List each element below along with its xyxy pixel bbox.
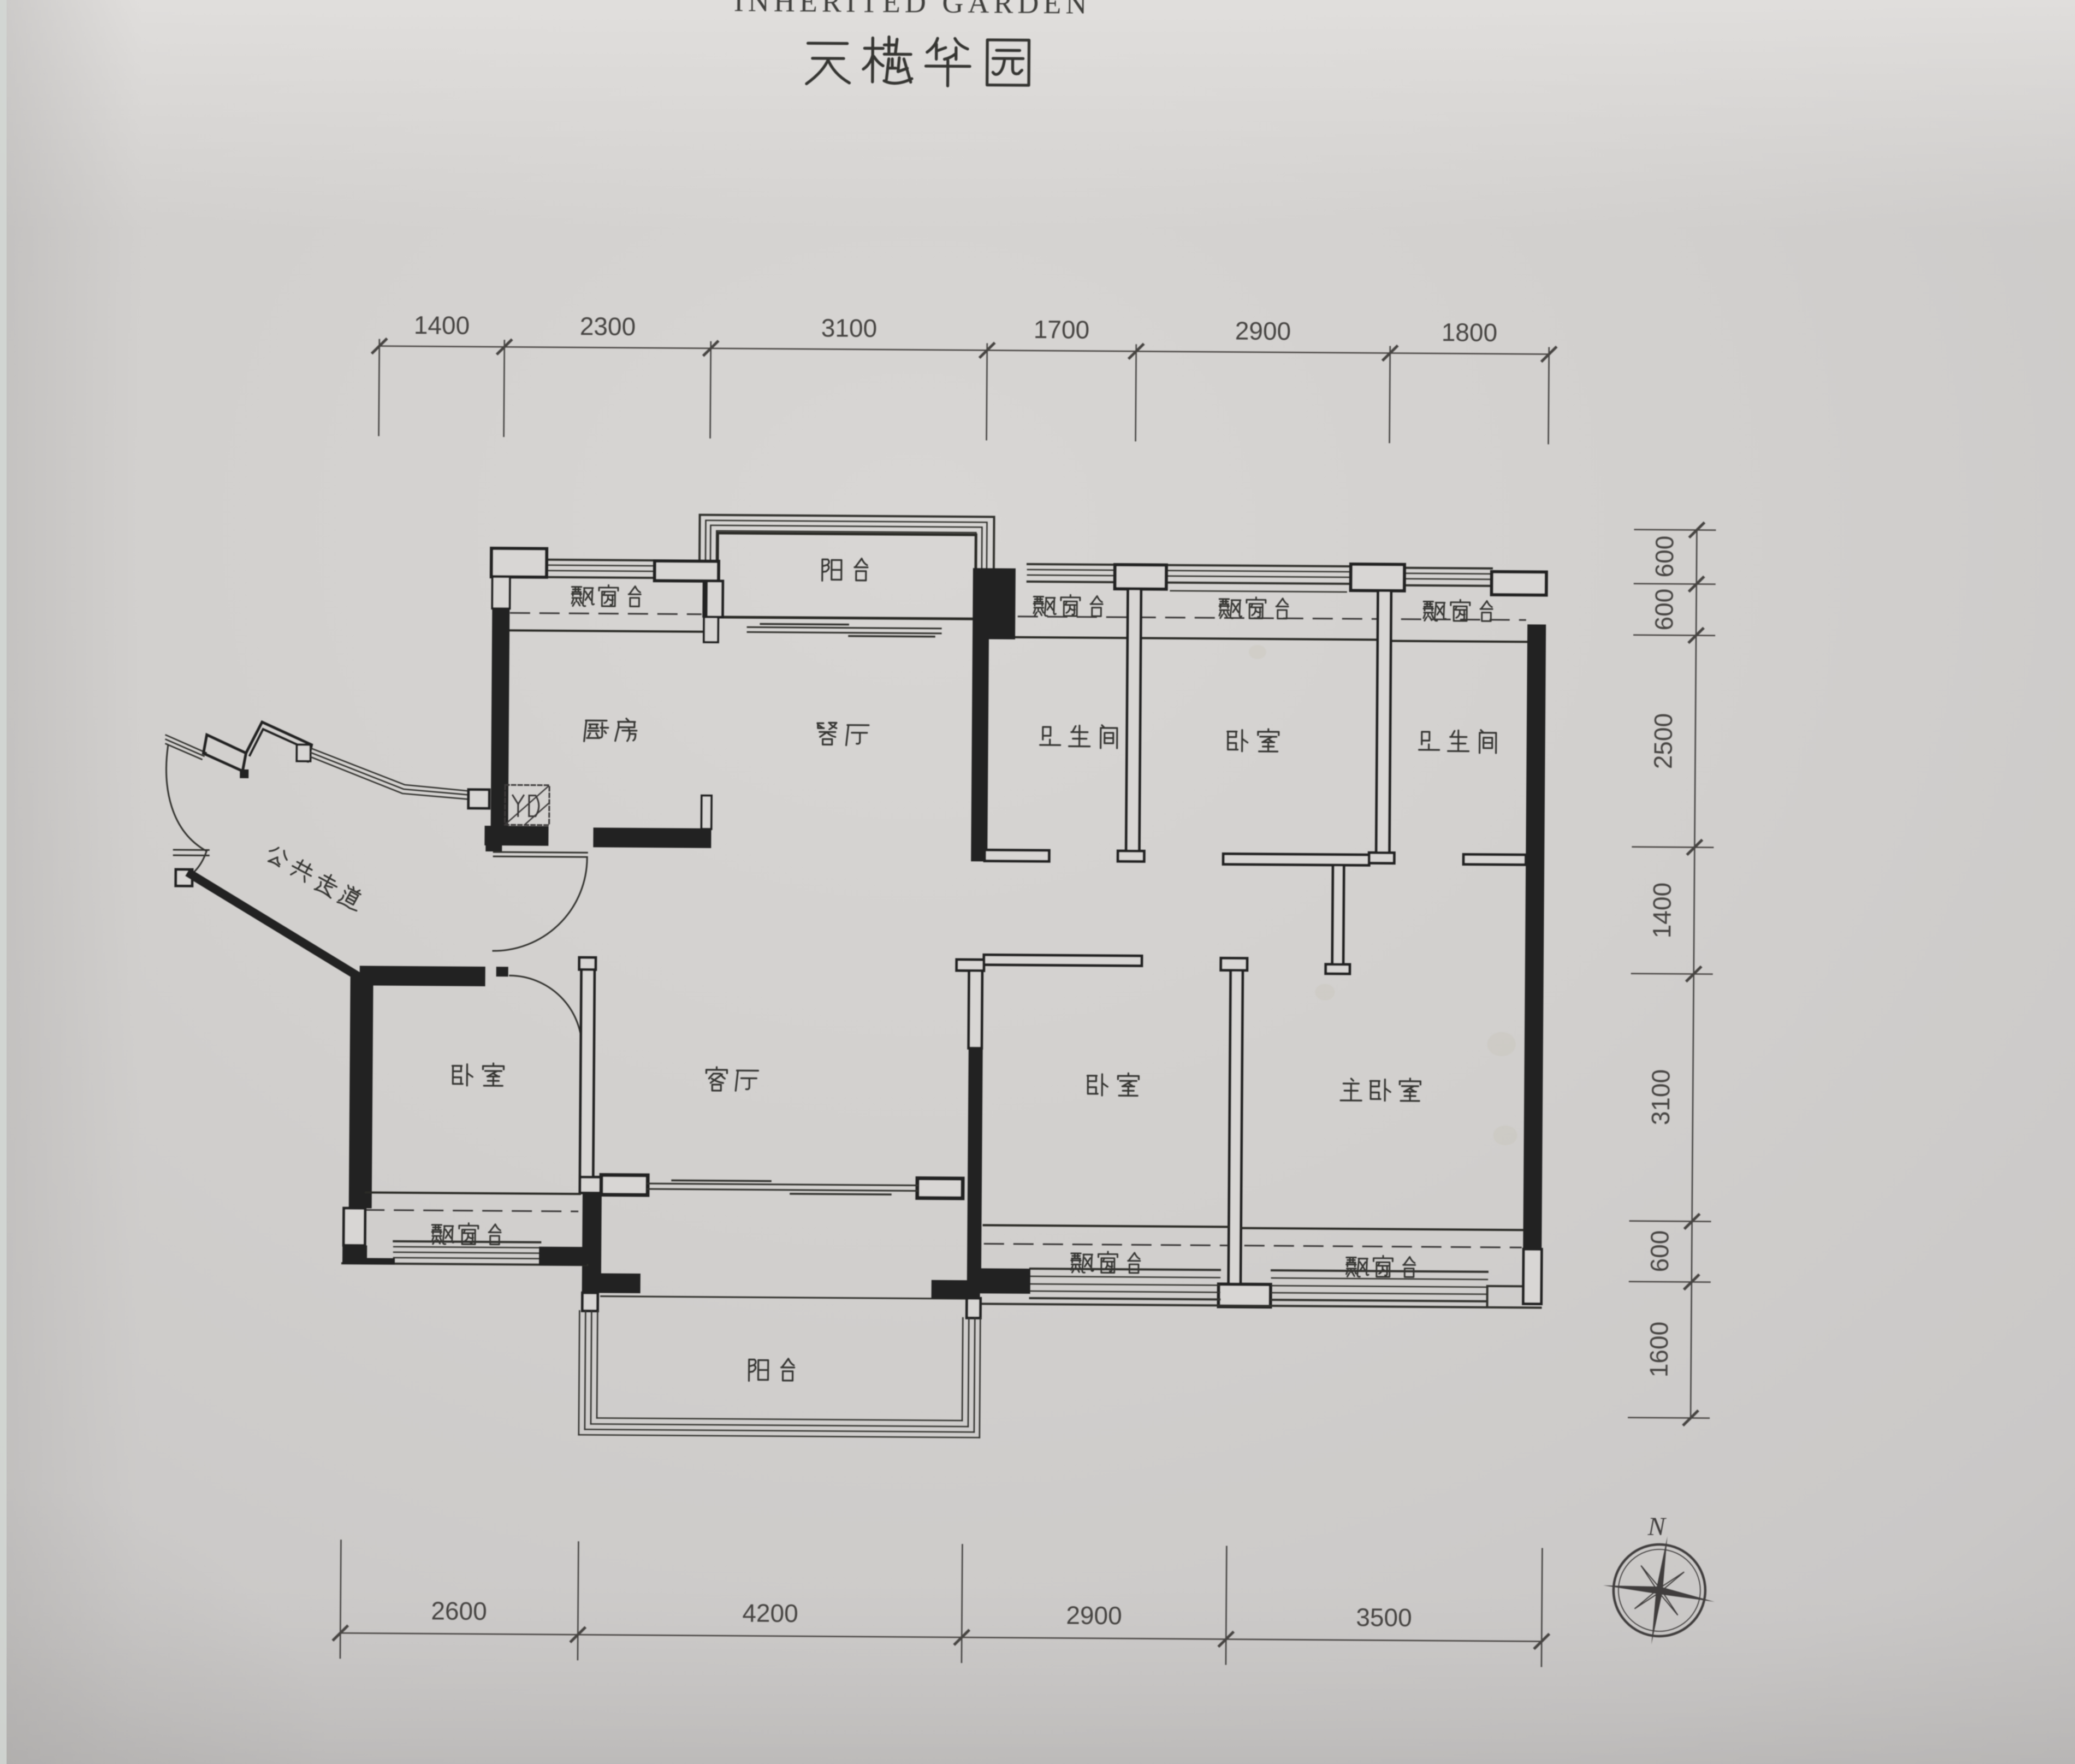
svg-text:1800: 1800 (1442, 318, 1498, 347)
svg-text:1600: 1600 (1645, 1322, 1674, 1378)
svg-text:1400: 1400 (414, 311, 470, 340)
svg-text:600: 600 (1645, 1230, 1674, 1272)
svg-text:3100: 3100 (821, 313, 878, 342)
svg-text:600: 600 (1650, 588, 1679, 630)
svg-text:INHERITED GARDEN: INHERITED GARDEN (734, 0, 1092, 20)
svg-text:N: N (1647, 1512, 1667, 1541)
svg-text:1400: 1400 (1647, 883, 1676, 939)
svg-text:2900: 2900 (1235, 317, 1291, 346)
svg-text:1700: 1700 (1034, 315, 1090, 344)
svg-text:2500: 2500 (1649, 713, 1677, 769)
svg-text:3500: 3500 (1356, 1603, 1412, 1632)
svg-text:2900: 2900 (1066, 1601, 1122, 1630)
svg-text:4200: 4200 (742, 1599, 798, 1627)
svg-text:600: 600 (1650, 535, 1679, 577)
svg-text:2300: 2300 (580, 312, 636, 341)
svg-text:2600: 2600 (431, 1596, 487, 1625)
svg-text:3100: 3100 (1646, 1069, 1675, 1126)
